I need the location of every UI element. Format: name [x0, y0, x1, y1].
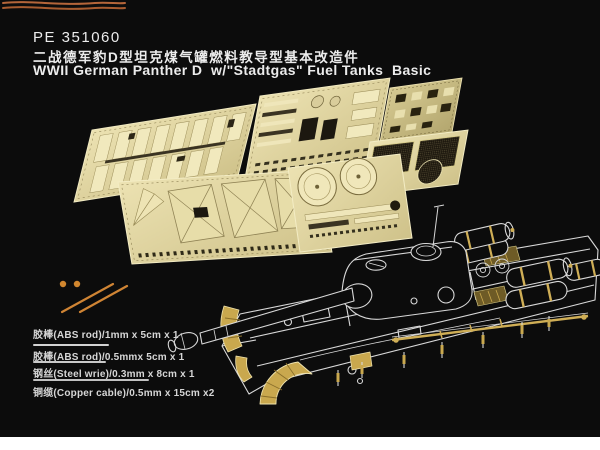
rod-sample-marks [60, 281, 127, 312]
material-label-steel-wire: 钢丝(Steel wrie)/0.3mm x 8cm x 1 [33, 365, 195, 380]
steel-wire-sample [33, 379, 149, 381]
material-label-copper-cable: 铜缆(Copper cable)/0.5mm x 15cm x2 [33, 384, 214, 399]
antenna [433, 205, 444, 247]
abs-rod-1mm-sample [33, 344, 109, 346]
material-label-abs-rod-1mm: 胶棒(ABS rod)/1mm x 5cm x 1 [33, 326, 179, 341]
abs-rod-05mm-sample [33, 361, 106, 363]
pe-fret-tank-ends [288, 153, 412, 252]
product-page: PE 351060 二战德军豹D型坦克煤气罐燃料教导型基本改造件 WWII Ge… [0, 0, 600, 450]
bottom-margin [0, 437, 600, 450]
product-photo: PE 351060 二战德军豹D型坦克煤气罐燃料教导型基本改造件 WWII Ge… [0, 0, 600, 437]
copper-cable-sample [0, 0, 128, 12]
